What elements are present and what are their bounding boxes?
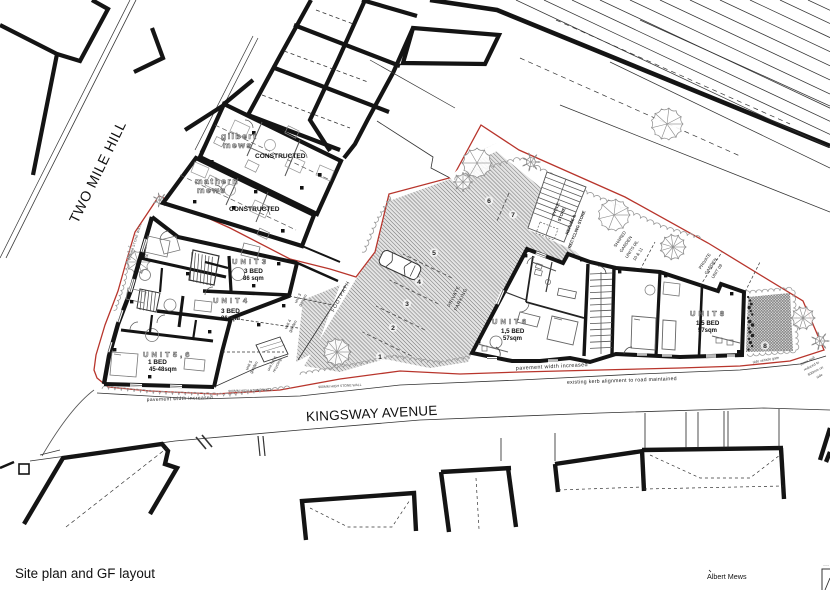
svg-text:~~~: ~~~ [823, 564, 829, 568]
svg-text:2: 2 [391, 325, 395, 332]
svg-text:U N I T 5 , 6: U N I T 5 , 6 [143, 350, 190, 359]
svg-text:86 sqm: 86 sqm [243, 276, 264, 282]
svg-text:6: 6 [487, 198, 491, 205]
svg-text:7: 7 [511, 212, 515, 219]
svg-text:1,5 BED: 1,5 BED [501, 328, 525, 335]
svg-text:CONSTRUCTED: CONSTRUCTED [229, 206, 280, 213]
svg-text:5: 5 [432, 250, 436, 257]
svg-text:U N I T 6: U N I T 6 [492, 317, 527, 326]
svg-text:8: 8 [763, 343, 767, 350]
svg-text:Albert Mews: Albert Mews [707, 572, 747, 581]
svg-text:mews: mews [197, 185, 227, 195]
svg-text:Site plan and GF layout: Site plan and GF layout [15, 566, 155, 581]
svg-text:3 BED: 3 BED [221, 308, 240, 315]
svg-text:4: 4 [417, 279, 421, 286]
svg-text:57sqm: 57sqm [698, 328, 717, 334]
svg-text:3 BED: 3 BED [244, 268, 263, 275]
svg-text:U N I T 3: U N I T 3 [232, 257, 267, 266]
svg-text:CONSTRUCTED: CONSTRUCTED [255, 153, 306, 160]
svg-text:U N I T 4: U N I T 4 [213, 296, 248, 305]
svg-text:U N I T 8: U N I T 8 [690, 309, 725, 318]
svg-text:3: 3 [405, 301, 409, 308]
svg-text:1,5 BED: 1,5 BED [696, 320, 720, 327]
svg-text:57sqm: 57sqm [503, 336, 522, 342]
svg-text:mews: mews [223, 140, 253, 150]
svg-text:45-48sqm: 45-48sqm [149, 367, 177, 373]
svg-text:1: 1 [378, 354, 382, 361]
svg-text:1 BED: 1 BED [148, 359, 167, 366]
